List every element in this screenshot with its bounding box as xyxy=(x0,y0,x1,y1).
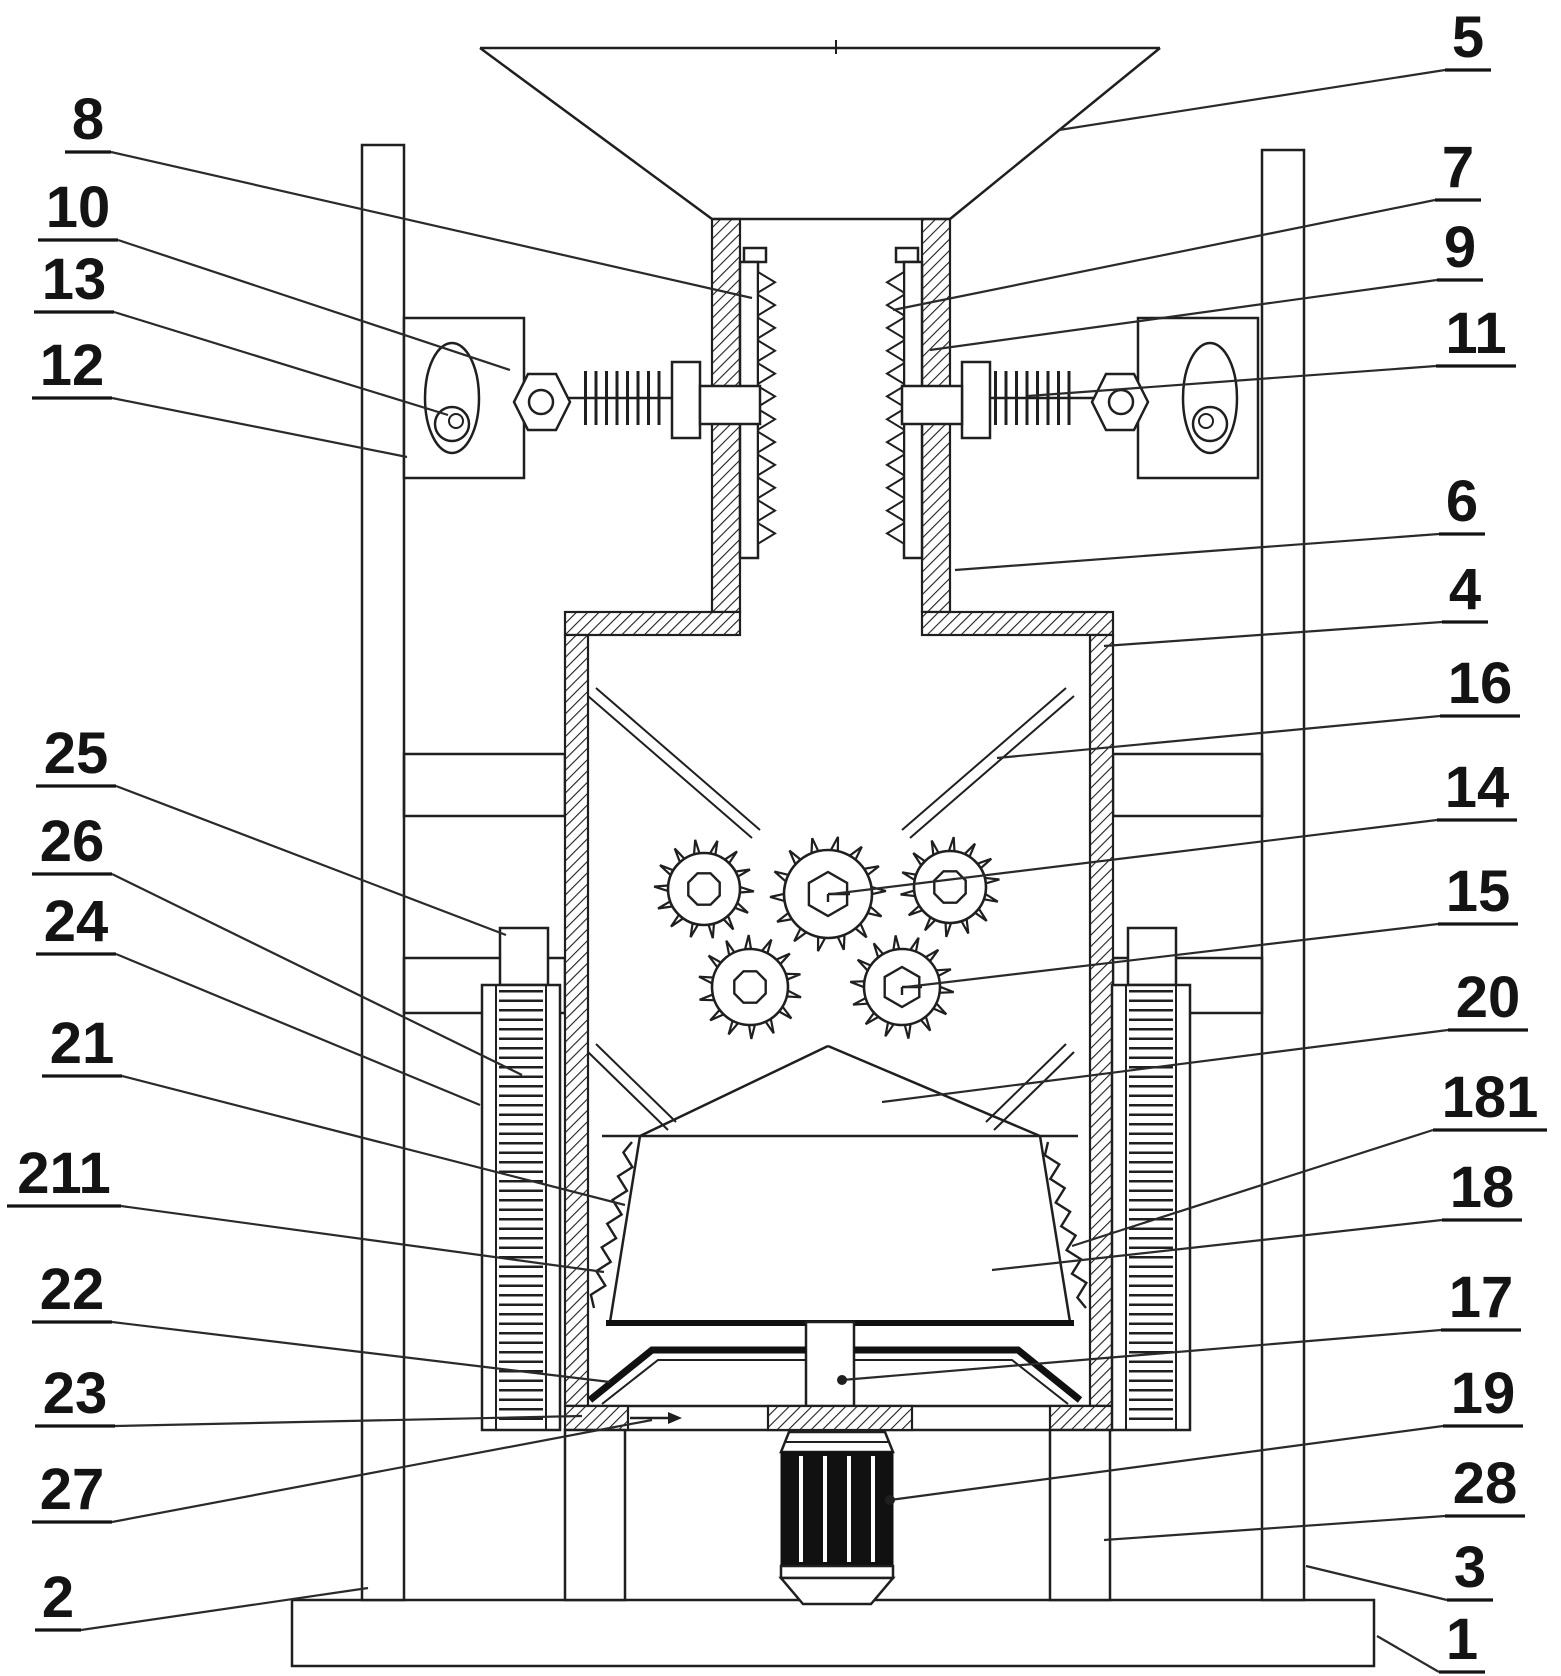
part-number-8: 8 xyxy=(72,87,104,152)
left-screw-housing xyxy=(482,985,560,1430)
machine-drawing: 8101312252624212112223272579116416141520… xyxy=(0,0,1561,1676)
left-screw-cap xyxy=(500,928,548,985)
right-hex-bolt-hole xyxy=(1109,390,1133,414)
left-frame-post xyxy=(362,145,404,1600)
patent-figure: 8101312252624212112223272579116416141520… xyxy=(0,0,1561,1676)
part-number-10: 10 xyxy=(46,175,111,240)
left-slider-block xyxy=(672,362,700,438)
part-number-6: 6 xyxy=(1446,469,1478,534)
part-number-22: 22 xyxy=(40,1257,105,1322)
drive-motor xyxy=(781,1432,893,1604)
right-slider-block xyxy=(962,362,990,438)
right-frame-post xyxy=(1262,150,1304,1600)
part-number-3: 3 xyxy=(1454,1535,1486,1600)
housing-right-wall xyxy=(1090,635,1113,1406)
part-number-9: 9 xyxy=(1444,215,1476,280)
part-number-7: 7 xyxy=(1442,135,1474,200)
part-number-26: 26 xyxy=(40,809,105,874)
part-number-27: 27 xyxy=(40,1457,105,1522)
part-number-13: 13 xyxy=(42,247,107,312)
platform-right-block xyxy=(1050,1406,1113,1430)
part-number-28: 28 xyxy=(1453,1451,1518,1516)
part-number-16: 16 xyxy=(1448,651,1513,716)
left-slider-arm xyxy=(700,386,760,424)
part-number-18: 18 xyxy=(1450,1155,1515,1220)
part-number-24: 24 xyxy=(44,889,109,954)
part-number-4: 4 xyxy=(1449,557,1481,622)
box-right-wall xyxy=(1050,1430,1110,1600)
part-number-181: 181 xyxy=(1442,1065,1539,1130)
part-number-19: 19 xyxy=(1451,1361,1516,1426)
part-number-12: 12 xyxy=(40,333,105,398)
part-number-25: 25 xyxy=(44,721,109,786)
platform-center-block xyxy=(768,1406,912,1430)
right-screw-housing xyxy=(1112,985,1190,1430)
right-slider-arm xyxy=(902,386,962,424)
part-number-14: 14 xyxy=(1445,755,1510,820)
housing-left-wall xyxy=(565,635,588,1406)
part-number-1: 1 xyxy=(1446,1607,1478,1672)
left-hex-bolt-hole xyxy=(529,390,553,414)
part-number-17: 17 xyxy=(1449,1265,1514,1330)
motor-body xyxy=(781,1452,893,1566)
part-number-21: 21 xyxy=(50,1011,115,1076)
base-plate xyxy=(292,1600,1374,1666)
part-number-211: 211 xyxy=(17,1141,111,1206)
right-eyelet-hole xyxy=(1193,407,1227,441)
box-left-wall xyxy=(565,1430,625,1600)
right-shoulder-wall xyxy=(922,612,1113,635)
right-plate-mount-tab xyxy=(896,248,918,262)
part-number-2: 2 xyxy=(42,1565,74,1630)
motor-bottom-collar xyxy=(781,1566,893,1578)
left-shoulder-wall xyxy=(565,612,740,635)
part-number-5: 5 xyxy=(1452,5,1484,70)
part-number-23: 23 xyxy=(43,1361,108,1426)
part-number-20: 20 xyxy=(1456,965,1521,1030)
part-number-15: 15 xyxy=(1446,859,1511,924)
part-number-11: 11 xyxy=(1445,301,1506,366)
left-plate-mount-tab xyxy=(744,248,766,262)
